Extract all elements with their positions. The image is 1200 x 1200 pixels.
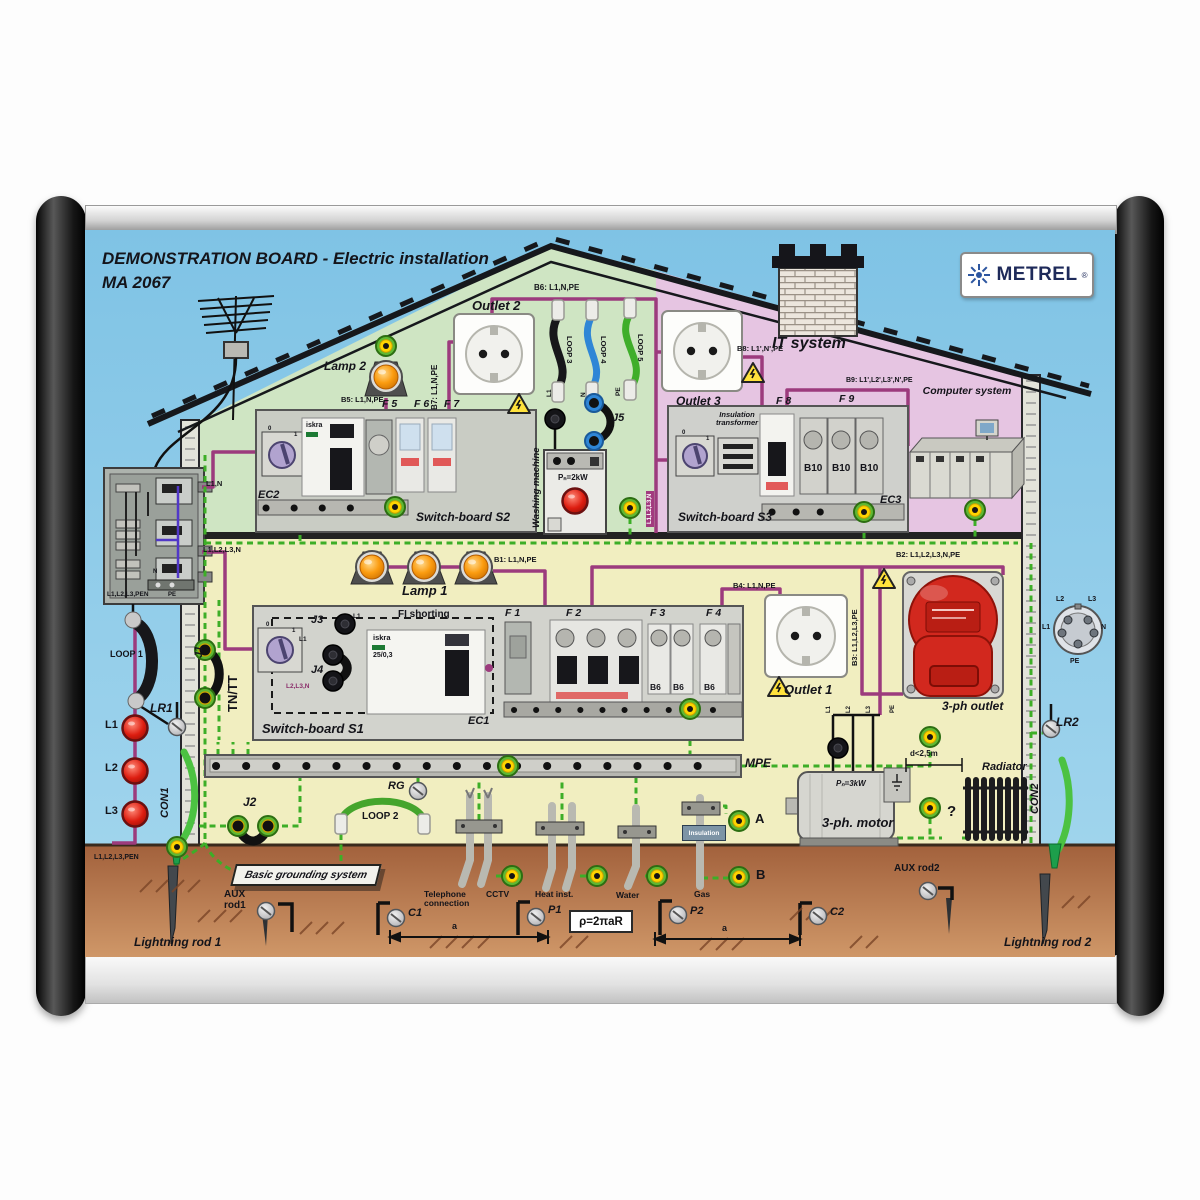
outlet3-label: Outlet 3 — [676, 395, 721, 408]
gas-label: Gas — [694, 890, 710, 899]
motor-power-label: Pₙ=3kW — [836, 780, 866, 788]
pin-l3-label: L3 — [1088, 596, 1096, 603]
j1-label: J1 — [194, 646, 206, 658]
basic-grounding-sign: Basic grounding system — [230, 864, 381, 886]
loop4-socket-top — [586, 300, 598, 320]
ec2-jack — [385, 497, 405, 517]
jack-b — [729, 867, 749, 887]
s2-iskra-brand: iskra — [306, 422, 322, 429]
lr1-terminal — [169, 719, 186, 736]
f1-label: F 1 — [505, 608, 520, 619]
lamp-l3 — [123, 802, 148, 827]
switchboard-s3-label: Switch-board S3 — [678, 511, 772, 524]
water-jack — [647, 866, 667, 886]
lamp1-bulb-1 — [356, 551, 388, 583]
l123pen-label: L1,L2,L3,PEN — [107, 592, 149, 599]
floor-slab — [199, 532, 1022, 539]
s1-rotary-1: 1 — [292, 628, 295, 634]
mpe-jack — [498, 756, 518, 776]
b5-label: B5: L1,N,PE — [341, 396, 384, 404]
lamp2-bulb — [370, 361, 402, 393]
wire-n-label: N — [581, 392, 588, 397]
supply-cable-label: L1,L2,L3,PEN — [94, 854, 139, 861]
ec3-jack — [854, 502, 874, 522]
f7-label: F 7 — [444, 399, 459, 410]
outlet-1 — [765, 595, 847, 677]
motor-wire-l3: L3 — [866, 706, 872, 713]
motor-upper-jack — [920, 727, 940, 747]
p1-terminal — [528, 909, 545, 926]
s2-rotary-1: 1 — [294, 432, 297, 438]
c1-terminal — [388, 910, 405, 927]
l1-wire-label-a: L1 — [299, 637, 307, 644]
three-phase-outlet — [903, 572, 1003, 698]
metrel-logo: METREL® — [960, 252, 1094, 298]
rcd-rating: 25/0,3 — [373, 652, 392, 659]
lamp1-bulb-2 — [408, 551, 440, 583]
jack-a-label: A — [755, 812, 764, 826]
j4-label: J4 — [311, 665, 323, 677]
lamp-l2 — [123, 759, 148, 784]
three-ph-outlet-label: 3-ph outlet — [942, 700, 1003, 713]
j3-socket — [335, 614, 355, 634]
supply-cabinet — [104, 468, 212, 604]
l1-wire-label-b: L1 — [353, 614, 361, 621]
b1-label: B1: L1,N,PE — [494, 556, 537, 564]
aux-rod2-terminal — [920, 883, 937, 900]
s2-rotary-0: 0 — [268, 426, 271, 432]
b10-label-3: B10 — [860, 464, 878, 475]
resistivity-formula: ρ=2πaR — [569, 910, 633, 933]
mpe-label: MPE — [745, 757, 771, 770]
j3-label: J3 — [311, 615, 323, 627]
f6-label: F 6 — [414, 399, 429, 410]
con1-label: CON1 — [160, 787, 172, 818]
j4-socket-top — [323, 645, 343, 665]
washer-socket — [545, 409, 565, 429]
lamp-l3-label: L3 — [105, 806, 118, 818]
b10-label-1: B10 — [804, 464, 822, 475]
metrel-swirl-icon — [966, 262, 992, 288]
ec1-label: EC1 — [468, 716, 489, 728]
b3-label: B3: L1,L2,L3,PE — [851, 609, 859, 666]
s2-fuse-module — [366, 420, 392, 494]
b6-breaker-label-1: B6 — [650, 683, 661, 692]
f8-label: F 8 — [776, 396, 791, 407]
heat-label: Heat inst. — [535, 890, 573, 899]
lamp2-pe-jack — [376, 336, 396, 356]
motor-wire-pe: PE — [890, 705, 896, 713]
l2l3n-wire-label: L2,L3,N — [286, 684, 309, 691]
washer-lamp — [563, 489, 588, 514]
lamp-l2-label: L2 — [105, 763, 118, 775]
board-graphic — [0, 0, 1200, 1200]
lamp-l1-label: L1 — [105, 720, 118, 732]
mpe-bus — [205, 755, 741, 777]
s1-rotary-0: 0 — [266, 622, 269, 628]
wire-pe-label: PE — [616, 387, 623, 396]
j5-label: J5 — [612, 413, 624, 425]
riser-tag: L1,L2,L3,N — [646, 491, 654, 527]
motor-label: 3-ph. motor — [822, 816, 894, 830]
rg-label: RG — [388, 781, 405, 793]
question-mark-label: ? — [947, 804, 956, 820]
f3-label: F 3 — [650, 608, 665, 619]
loop3-socket-top — [552, 300, 564, 320]
b6-breaker-label-2: B6 — [673, 683, 684, 692]
s3-fuse-b10-3 — [856, 418, 883, 494]
lr2-label: LR2 — [1056, 716, 1079, 729]
motor-wire-l2: L2 — [846, 706, 852, 713]
s3-rotary-1: 1 — [706, 436, 709, 442]
attic-pe-jack — [620, 498, 640, 518]
brand-name: METREL — [996, 264, 1077, 286]
pin-l2-label: L2 — [1056, 596, 1064, 603]
connector-pinout — [1054, 604, 1102, 654]
con1-socket — [167, 837, 187, 857]
telephone-label: Telephone connection — [424, 890, 486, 908]
j4-socket-bottom — [323, 671, 343, 691]
c2-label: C2 — [830, 907, 844, 919]
lamp2-label: Lamp 2 — [324, 360, 366, 373]
washer-power-label: Pₙ=2kW — [558, 474, 588, 482]
p1-label: P1 — [548, 905, 561, 917]
loop2-socket-left — [335, 814, 347, 834]
f9-label: F 9 — [839, 394, 854, 405]
ec1-jack — [680, 699, 700, 719]
b2-label: B2: L1,L2,L3,N,PE — [896, 551, 960, 559]
computer-system-label: Computer system — [922, 386, 1012, 397]
radiator-label: Radiator — [982, 762, 1027, 774]
loop2-socket-right — [418, 814, 430, 834]
outlet-2 — [454, 314, 534, 394]
heat-jack — [587, 866, 607, 886]
chimney — [772, 244, 864, 336]
motor-wire-l1: L1 — [826, 706, 832, 713]
rg-terminal — [410, 783, 427, 800]
loop4-label: LOOP 4 — [599, 336, 607, 363]
fi-shorting-label: FI shorting — [398, 610, 450, 621]
pin-pe-label: PE — [1070, 658, 1079, 665]
outlet-3 — [662, 311, 742, 391]
lamp1-label: Lamp 1 — [402, 584, 448, 598]
ec3-label: EC3 — [880, 495, 901, 507]
distance-label: d<2,5m — [910, 750, 938, 758]
lightning-rod1-label: Lightning rod 1 — [134, 936, 221, 949]
lamp-1-group — [351, 551, 497, 584]
insulation-transformer-label: Insulation transformer — [708, 411, 766, 427]
lamp1-bulb-3 — [460, 551, 492, 583]
lamp-l1 — [123, 716, 148, 741]
outlet2-label: Outlet 2 — [472, 299, 520, 313]
s3-fuse-b10-1 — [800, 418, 827, 494]
p2-label: P2 — [690, 906, 703, 918]
aux-rod1-label: AUX rod1 — [224, 890, 264, 911]
tn-tt-label: TN/TT — [226, 675, 240, 712]
b7-label: B7: L1,N,PE — [431, 365, 439, 410]
b10-label-2: B10 — [832, 464, 850, 475]
j2-label: J2 — [243, 796, 256, 809]
l123n-label: L1,L2,L3,N — [203, 546, 241, 554]
b6-breaker-label-3: B6 — [704, 683, 715, 692]
insulation-box: Insulation — [682, 825, 726, 841]
dim-a2-label: a — [722, 924, 727, 933]
motor-lower-jack — [920, 798, 940, 818]
demo-board-photo: DEMONSTRATION BOARD - Electric installat… — [0, 0, 1200, 1200]
lightning-rod2-label: Lightning rod 2 — [1004, 936, 1091, 949]
wire-l1-label: L1 — [547, 389, 554, 397]
cctv-label: CCTV — [486, 890, 509, 899]
pe-label: PE — [168, 592, 176, 598]
switchboard-s1-label: Switch-board S1 — [262, 722, 364, 736]
loop1-label: LOOP 1 — [110, 650, 143, 659]
p2-terminal — [670, 907, 687, 924]
pin-l1-label: L1 — [1042, 624, 1050, 631]
cctv-jack — [502, 866, 522, 886]
s1-iskra-brand: iskra — [373, 634, 391, 642]
b9-label: B9: L1',L2',L3',N',PE — [846, 377, 913, 384]
loop3-label: LOOP 3 — [565, 336, 573, 363]
registered-mark: ® — [1082, 271, 1088, 280]
f2-label: F 2 — [566, 608, 581, 619]
motor-socket — [828, 738, 848, 758]
pin-n-label: N — [1101, 624, 1106, 631]
loop5-socket-top — [624, 298, 636, 318]
lr1-label: LR1 — [150, 702, 173, 715]
l1n-label: L1,N — [206, 480, 222, 488]
n-label: N — [153, 569, 157, 575]
c2-terminal — [810, 908, 827, 925]
b4-label: B4: L1,N,PE — [733, 582, 776, 590]
b6-label: B6: L1,N,PE — [534, 284, 579, 292]
dim-a1-label: a — [452, 922, 457, 931]
computer-pe-jack — [965, 500, 985, 520]
f4-label: F 4 — [706, 608, 721, 619]
board-model: MA 2067 — [102, 274, 170, 292]
s3-rotary-0: 0 — [682, 430, 685, 436]
washing-machine-label: Washing machine — [532, 447, 542, 528]
loop5-socket-bottom — [624, 380, 636, 400]
f5-label: F 5 — [382, 399, 397, 410]
aux-rod2-label: AUX rod2 — [894, 864, 940, 875]
board-title: DEMONSTRATION BOARD - Electric installat… — [102, 250, 489, 268]
water-label: Water — [616, 891, 639, 900]
jack-b-label: B — [756, 868, 765, 882]
switchboard-s2-label: Switch-board S2 — [416, 511, 510, 524]
outlet1-label: Outlet 1 — [784, 683, 832, 697]
c1-label: C1 — [408, 908, 422, 920]
loop2-label: LOOP 2 — [362, 812, 399, 823]
loop5-label: LOOP 5 — [636, 334, 644, 361]
s3-fuse-b10-2 — [828, 418, 855, 494]
ec2-label: EC2 — [258, 490, 279, 502]
con2-label: CON2 — [1030, 783, 1042, 814]
jack-a — [729, 811, 749, 831]
b8-label: B8: L1',N',PE — [737, 345, 783, 353]
